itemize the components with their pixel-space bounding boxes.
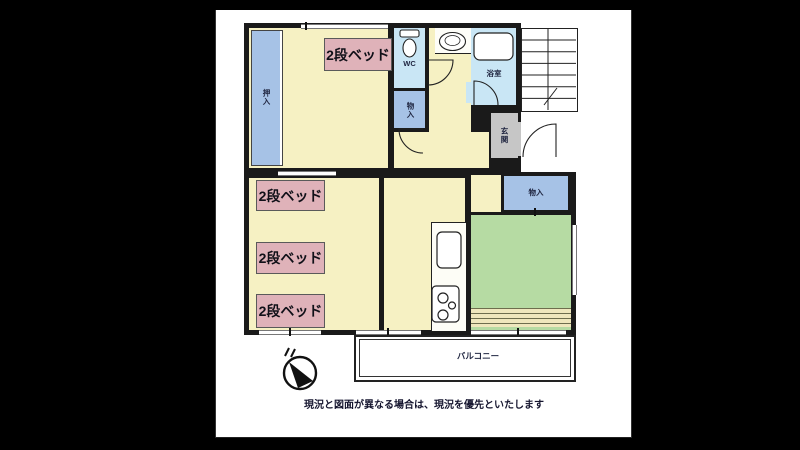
compass-icon xyxy=(284,348,316,389)
fixtures-overlay xyxy=(216,10,631,437)
kitchen-sink-icon xyxy=(437,232,461,268)
storage1-label: 物入 xyxy=(402,94,418,126)
bathtub-icon xyxy=(474,33,513,60)
bath-label: 浴室 xyxy=(478,68,510,79)
stairs-treads-icon xyxy=(521,28,576,110)
stove-icon xyxy=(432,286,459,322)
storage2-label: 物入 xyxy=(520,187,552,198)
bunkbed-label-1: 2段ベッド xyxy=(324,38,392,71)
floorplan-document: バルコニー xyxy=(215,10,632,438)
oshiire-label: 押入 xyxy=(258,80,274,114)
disclaimer-text: 現況と図面が異なる場合は、現況を優先といたします xyxy=(304,396,534,411)
bunkbed-label-3: 2段ベッド xyxy=(256,242,325,274)
bunkbed-label-4: 2段ベッド xyxy=(256,294,325,328)
bunkbed-label-2: 2段ベッド xyxy=(256,180,325,211)
toilet-icon xyxy=(400,30,419,57)
washbasin-icon xyxy=(440,33,466,51)
screenshot-canvas: { "plan": { "rooms": { "oshiire_label": … xyxy=(0,0,800,450)
genkan-label: 玄関 xyxy=(496,119,512,152)
wc-label: WC xyxy=(397,59,422,69)
